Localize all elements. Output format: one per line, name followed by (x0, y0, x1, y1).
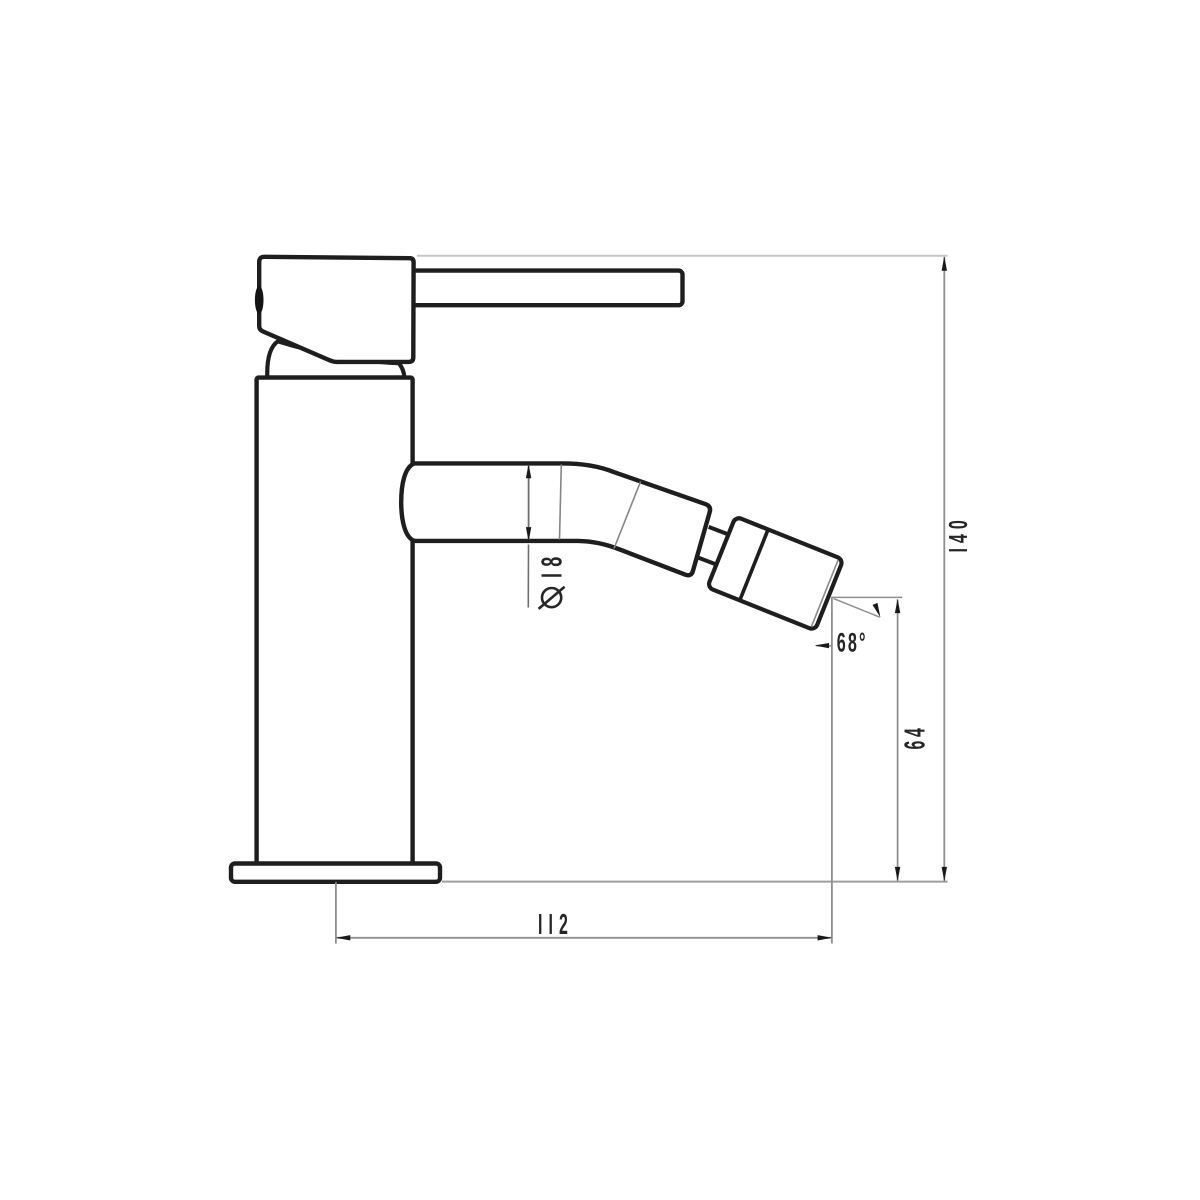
svg-text:68°: 68° (837, 627, 868, 657)
svg-text:64: 64 (898, 725, 930, 750)
svg-text:II2: II2 (538, 908, 574, 940)
svg-text:I8: I8 (536, 551, 568, 578)
svg-text:I40: I40 (943, 515, 973, 552)
